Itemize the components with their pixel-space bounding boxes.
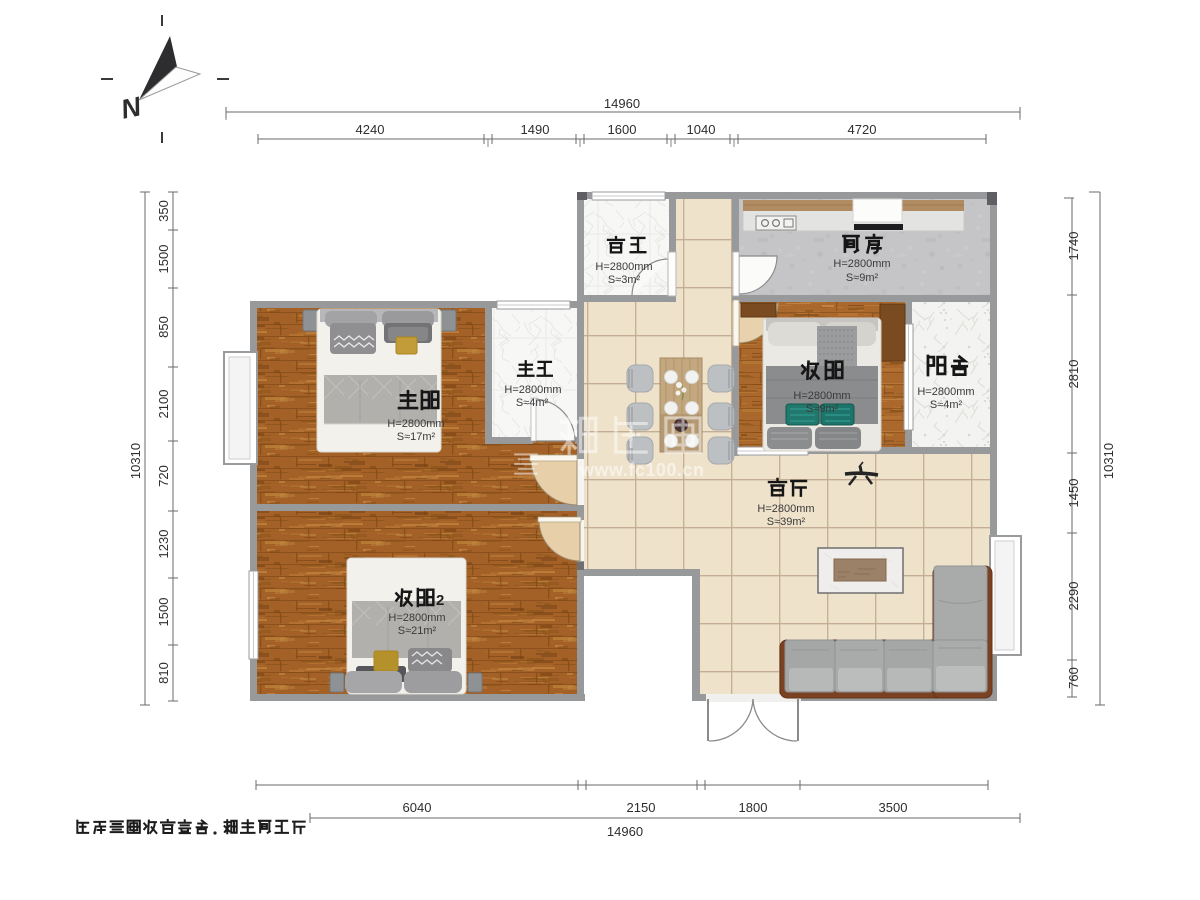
svg-text:S≈21m²: S≈21m² (398, 625, 437, 637)
svg-text:14960: 14960 (604, 96, 640, 111)
svg-text:S≈9m²: S≈9m² (846, 272, 879, 284)
svg-text:H=2800mm: H=2800mm (757, 503, 814, 515)
svg-text:10310: 10310 (1101, 443, 1116, 479)
svg-text:S≈9m²: S≈9m² (806, 403, 839, 415)
svg-text:1230: 1230 (156, 530, 171, 559)
svg-text:H=2800mm: H=2800mm (388, 612, 445, 624)
svg-text:14960: 14960 (607, 824, 643, 839)
svg-text:H=2800mm: H=2800mm (833, 258, 890, 270)
svg-text:1500: 1500 (156, 245, 171, 274)
svg-text:S≈17m²: S≈17m² (397, 431, 436, 443)
svg-text:H=2800mm: H=2800mm (387, 418, 444, 430)
svg-text:720: 720 (156, 465, 171, 487)
svg-text:2150: 2150 (627, 800, 656, 815)
svg-text:1500: 1500 (156, 598, 171, 627)
svg-text:4720: 4720 (848, 122, 877, 137)
svg-text:www.fc100.cn: www.fc100.cn (579, 460, 704, 480)
svg-text:1040: 1040 (687, 122, 716, 137)
svg-text:2: 2 (436, 592, 444, 609)
svg-text:850: 850 (156, 316, 171, 338)
svg-text:350: 350 (156, 200, 171, 222)
svg-text:S≈39m²: S≈39m² (767, 516, 806, 528)
svg-text:10310: 10310 (128, 443, 143, 479)
svg-text:S≈4m²: S≈4m² (930, 399, 963, 411)
svg-text:S≈3m²: S≈3m² (608, 274, 641, 286)
svg-text:760: 760 (1066, 667, 1081, 689)
svg-text:810: 810 (156, 662, 171, 684)
svg-text:6040: 6040 (403, 800, 432, 815)
svg-text:H=2800mm: H=2800mm (917, 386, 974, 398)
svg-text:H=2800mm: H=2800mm (793, 390, 850, 402)
svg-text:H=2800mm: H=2800mm (595, 261, 652, 273)
svg-text:1740: 1740 (1066, 232, 1081, 261)
svg-text:1800: 1800 (739, 800, 768, 815)
svg-text:1600: 1600 (608, 122, 637, 137)
svg-text:2810: 2810 (1066, 360, 1081, 389)
svg-text:4240: 4240 (356, 122, 385, 137)
svg-text:H=2800mm: H=2800mm (504, 384, 561, 396)
svg-text:1450: 1450 (1066, 479, 1081, 508)
svg-text:3500: 3500 (879, 800, 908, 815)
svg-text:2100: 2100 (156, 390, 171, 419)
svg-text:S≈4m²: S≈4m² (516, 397, 549, 409)
svg-text:2290: 2290 (1066, 582, 1081, 611)
svg-text:N: N (118, 91, 144, 125)
svg-text:1490: 1490 (521, 122, 550, 137)
